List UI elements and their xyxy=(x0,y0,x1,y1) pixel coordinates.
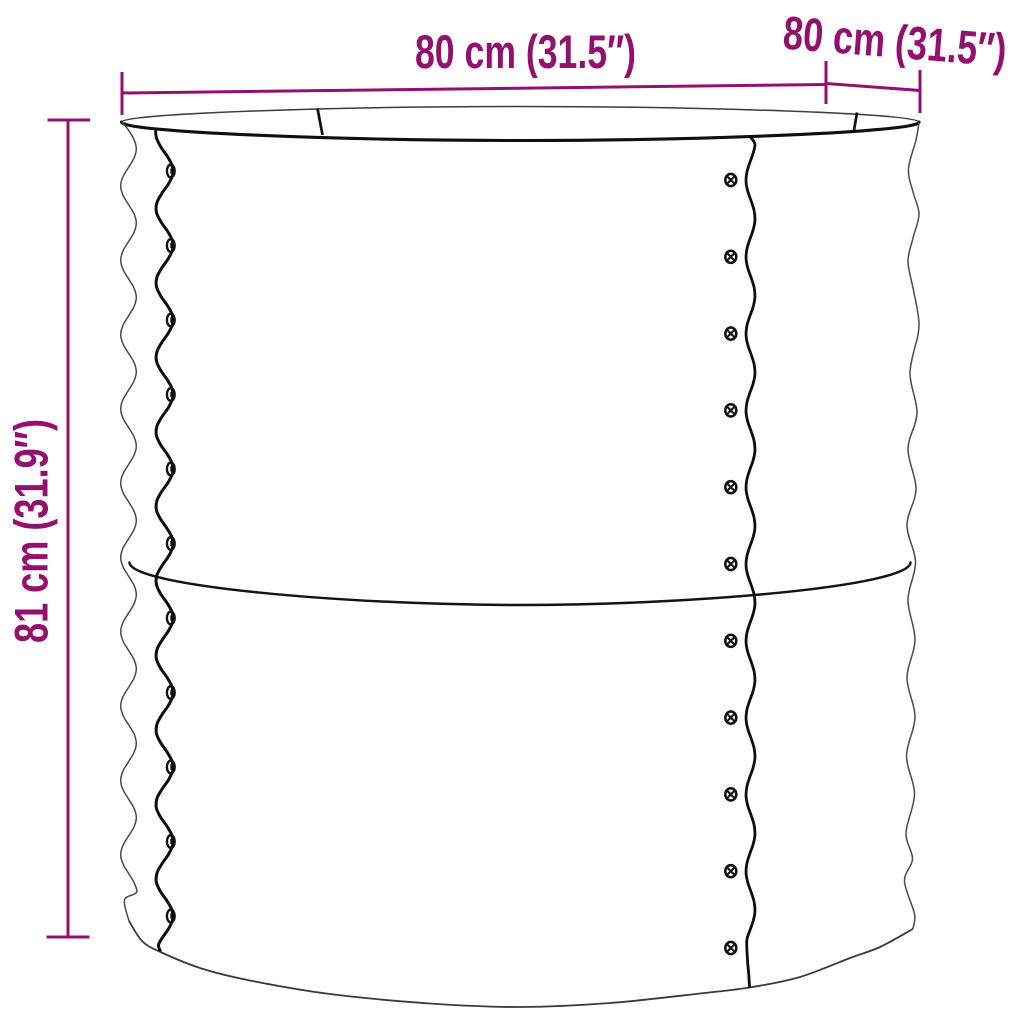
svg-text:81 cm (31.9″): 81 cm (31.9″) xyxy=(5,419,58,643)
svg-text:80 cm (31.5″): 80 cm (31.5″) xyxy=(415,25,636,78)
